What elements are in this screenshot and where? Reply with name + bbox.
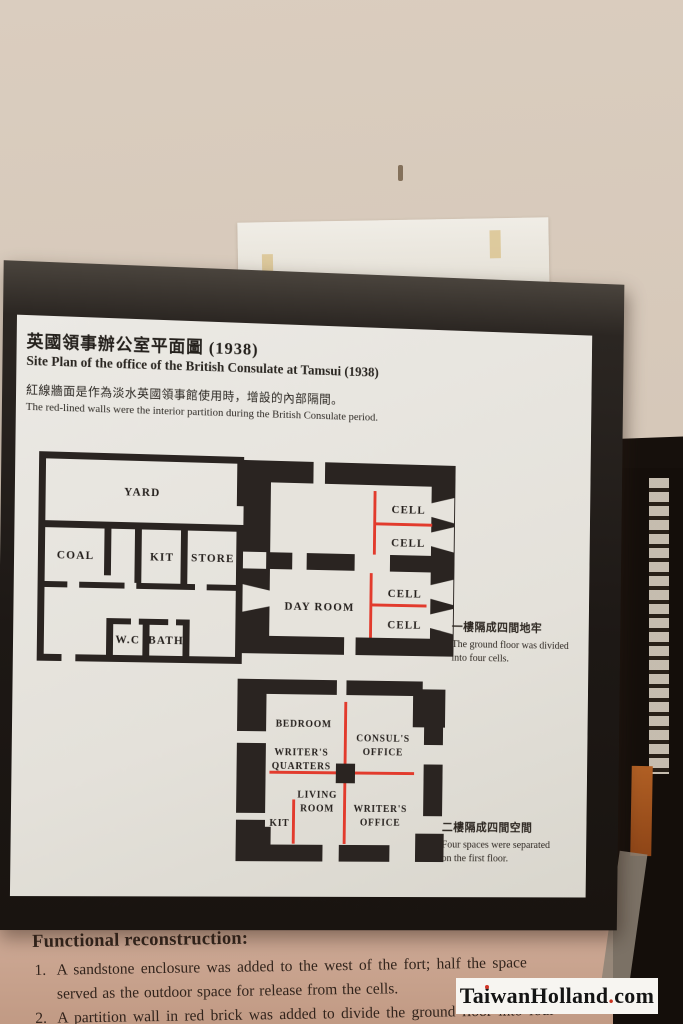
- room-label-consuls-office-2: OFFICE: [363, 747, 404, 758]
- first-floor-plan: BEDROOM CONSUL'S OFFICE WRITER'S QUARTER…: [235, 679, 445, 862]
- room-label-living-room-1: LIVING: [297, 790, 337, 801]
- first-floor-caption-chinese: 二樓隔成四間空間: [442, 819, 562, 835]
- room-label-kit: KIT: [150, 551, 174, 563]
- room-label-coal: COAL: [57, 549, 95, 562]
- room-label-writers-quarters-2: QUARTERS: [272, 761, 331, 772]
- watermark-text-post: com: [614, 983, 654, 1009]
- ground-floor-plan: YARD COAL KIT STORE W.C BATH DAY ROOM CE…: [37, 449, 458, 673]
- room-label-wc: W.C: [115, 634, 140, 646]
- room-label-cell-1: CELL: [391, 504, 425, 517]
- room-label-writers-office-2: OFFICE: [360, 818, 401, 829]
- room-label-cell-4: CELL: [387, 619, 421, 631]
- ground-floor-caption-chinese: 一樓隔成四間地牢: [452, 619, 572, 637]
- fort-mass: [242, 460, 456, 657]
- room-label-bath: BATH: [148, 635, 184, 648]
- photo-scene: Functional reconstruction: 1. A sandston…: [0, 0, 683, 1024]
- list-item-2-number: 2.: [35, 1007, 47, 1024]
- tape-strip: [489, 230, 500, 258]
- room-label-store: STORE: [191, 552, 235, 565]
- first-floor-walls: [235, 679, 445, 862]
- room-label-writers-quarters-1: WRITER'S: [274, 747, 328, 758]
- wood-slat: [630, 766, 653, 856]
- watermark-letter-i: i: [484, 983, 490, 1009]
- room-label-bedroom: BEDROOM: [276, 719, 332, 731]
- ground-floor-caption-english: The ground floor was divided into four c…: [451, 638, 571, 668]
- first-floor-caption: 二樓隔成四間空間 Four spaces were separated on t…: [441, 819, 562, 867]
- background-lattice: [649, 478, 669, 774]
- room-label-kit-upper: KIT: [269, 818, 289, 829]
- watermark-text-mid: wanHolland: [490, 983, 608, 1009]
- display-board-frame: 英國領事辦公室平面圖 (1938) Site Plan of the offic…: [0, 260, 624, 930]
- wall-nail: [398, 165, 403, 181]
- display-panel: 英國領事辦公室平面圖 (1938) Site Plan of the offic…: [10, 315, 592, 898]
- room-label-day-room: DAY ROOM: [284, 601, 354, 614]
- room-label-consuls-office-1: CONSUL'S: [356, 733, 410, 744]
- room-label-living-room-2: ROOM: [300, 803, 334, 814]
- room-label-writers-office-1: WRITER'S: [353, 804, 407, 815]
- room-label-cell-3: CELL: [388, 588, 422, 600]
- room-label-yard: YARD: [124, 486, 160, 499]
- list-item-1-number: 1.: [34, 959, 46, 983]
- watermark: TaiwanHolland.com: [456, 978, 658, 1014]
- watermark-text-pre: Ta: [460, 983, 484, 1009]
- first-floor-caption-english: Four spaces were separated on the first …: [441, 839, 562, 867]
- room-label-cell-2: CELL: [391, 537, 425, 550]
- ground-floor-caption: 一樓隔成四間地牢 The ground floor was divided in…: [451, 619, 572, 668]
